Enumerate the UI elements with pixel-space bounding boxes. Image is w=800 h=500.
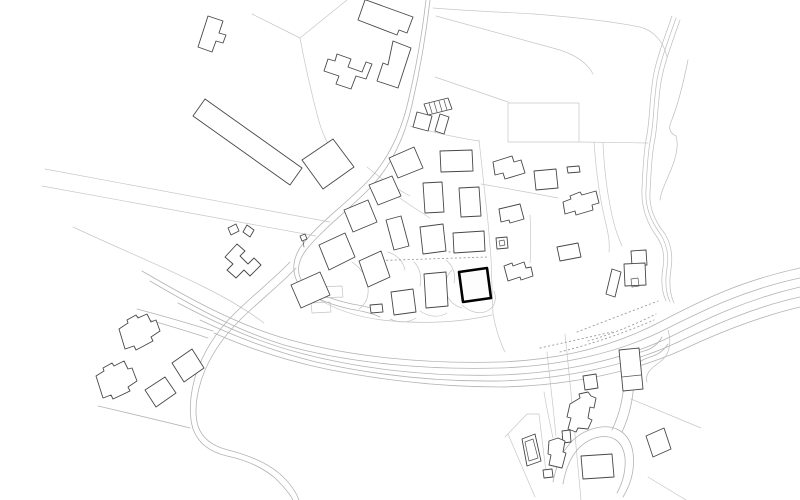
- building-footprint: [420, 224, 446, 254]
- parcel-boundary-line: [579, 142, 648, 143]
- building-footprint: [493, 156, 525, 179]
- building-footprint: [369, 176, 401, 205]
- building-footprint: [145, 377, 176, 407]
- road-line: [98, 406, 190, 428]
- building-footprint: [319, 233, 355, 270]
- parcel-boundary-line: [547, 352, 556, 436]
- parcel-boundaries-layer: [42, 0, 701, 500]
- building-footprint: [567, 166, 580, 173]
- dotted-line: [560, 320, 654, 352]
- building-footprint: [358, 0, 413, 35]
- road-line: [190, 262, 293, 500]
- path-line: [420, 311, 447, 316]
- parcel-boundary-line: [252, 14, 300, 38]
- parcel-boundary-line: [508, 103, 579, 142]
- dotted-line: [588, 314, 656, 341]
- building-footprint: [453, 231, 485, 253]
- building-footprint: [96, 361, 137, 399]
- building-footprint: [172, 349, 204, 382]
- building-footprint: [413, 112, 432, 131]
- building-footprint: [424, 272, 448, 308]
- building-footprint: [548, 438, 566, 468]
- site-plan-drawing: [0, 0, 800, 500]
- path-line: [414, 262, 421, 286]
- building-footprint: [193, 99, 302, 185]
- building-footprint: [557, 243, 581, 261]
- building-footprint: [581, 454, 614, 479]
- building-footprint: [424, 98, 452, 115]
- building-footprint: [359, 251, 390, 287]
- creek-line: [650, 20, 680, 303]
- road-line: [196, 268, 299, 500]
- roads-layer: [98, 0, 800, 500]
- parcel-boundary-line: [493, 314, 505, 352]
- building-footprint: [228, 224, 239, 235]
- building-footprint: [499, 204, 524, 223]
- building-footprint: [563, 191, 599, 215]
- building-footprint: [302, 139, 354, 189]
- parcel-boundary-line: [491, 258, 493, 314]
- parcel-boundary-line: [300, 0, 347, 38]
- building-footprint: [243, 225, 254, 237]
- building-footprint: [370, 304, 383, 313]
- parcel-boundary-line: [530, 215, 531, 263]
- building-detail-line: [303, 241, 304, 247]
- building-footprint: [624, 263, 646, 286]
- building-footprint: [391, 289, 416, 315]
- building-footprint: [386, 216, 409, 250]
- building-footprint: [606, 269, 621, 297]
- building-footprint: [435, 114, 449, 134]
- building-footprint: [583, 374, 598, 390]
- parcel-boundary-line: [648, 477, 686, 500]
- path-line: [311, 302, 331, 313]
- building-footprint: [459, 187, 481, 217]
- creek-line: [647, 330, 670, 382]
- path-line: [388, 252, 405, 270]
- parcel-boundary-line: [631, 399, 701, 428]
- dotted-line: [577, 301, 658, 332]
- building-footprint: [496, 237, 508, 249]
- building-footprint: [344, 200, 377, 232]
- building-footprint: [543, 469, 553, 478]
- building-footprint: [619, 348, 643, 391]
- creek-line: [660, 60, 688, 200]
- site-plan-viewport: [0, 0, 800, 500]
- building-footprint: [377, 41, 411, 88]
- creek-layer: [642, 16, 688, 382]
- building-footprint: [119, 314, 160, 350]
- buildings-layer: [96, 0, 671, 479]
- parcel-boundary-line: [300, 38, 332, 150]
- building-footprint: [198, 16, 226, 52]
- parcel-boundary-line: [42, 186, 316, 236]
- building-footprint: [534, 169, 558, 190]
- building-footprint: [225, 244, 261, 278]
- parcel-boundary-line: [433, 8, 667, 57]
- building-footprint: [440, 150, 473, 172]
- highlighted-building[interactable]: [459, 268, 491, 302]
- building-footprint: [504, 262, 533, 281]
- highlight-layer: [459, 268, 491, 302]
- road-line: [200, 297, 800, 381]
- parcel-boundary-line: [436, 16, 593, 74]
- building-footprint: [389, 147, 423, 178]
- building-footprint: [646, 428, 671, 457]
- parcel-boundary-line: [544, 392, 553, 438]
- building-footprint: [423, 182, 444, 213]
- building-footprint: [324, 54, 372, 89]
- building-footprint: [522, 434, 541, 466]
- parcel-boundary-line: [603, 143, 622, 246]
